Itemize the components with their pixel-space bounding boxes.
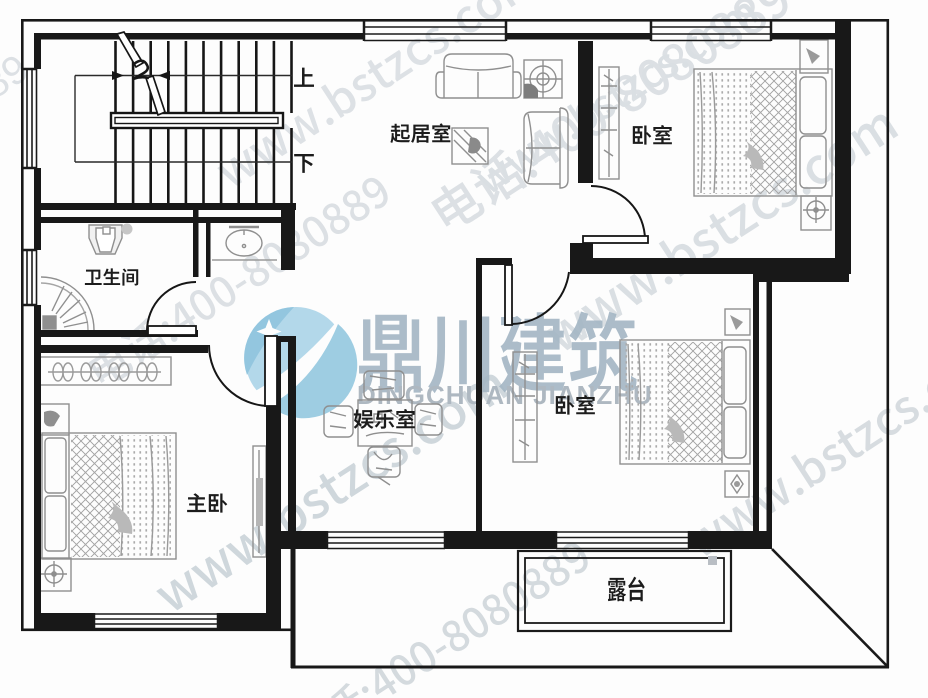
svg-text:DINGCHUAN JIANZHU: DINGCHUAN JIANZHU [357, 380, 653, 410]
